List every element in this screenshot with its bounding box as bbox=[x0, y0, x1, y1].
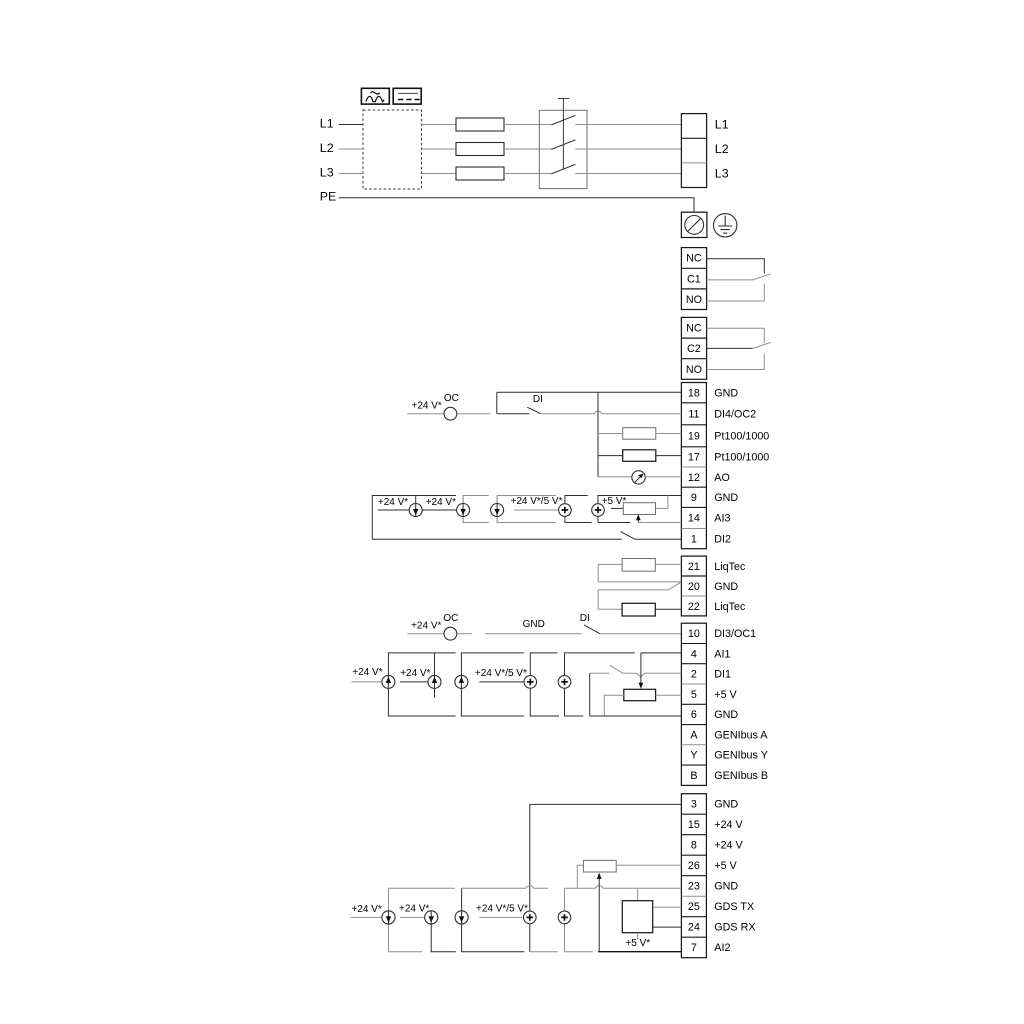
svg-text:Y: Y bbox=[690, 750, 697, 762]
svg-text:C1: C1 bbox=[687, 273, 701, 285]
svg-text:PE: PE bbox=[320, 190, 337, 204]
svg-text:+24 V*: +24 V* bbox=[411, 621, 441, 632]
svg-text:+24 V*/5 V*: +24 V*/5 V* bbox=[475, 668, 527, 679]
svg-text:LiqTec: LiqTec bbox=[714, 601, 746, 613]
svg-text:+5 V*: +5 V* bbox=[625, 938, 650, 949]
svg-text:+24 V: +24 V bbox=[714, 819, 743, 831]
svg-text:10: 10 bbox=[688, 628, 700, 640]
svg-text:26: 26 bbox=[688, 860, 700, 872]
svg-text:+24 V*: +24 V* bbox=[352, 904, 382, 915]
svg-text:L2: L2 bbox=[715, 142, 729, 156]
svg-text:L2: L2 bbox=[320, 141, 334, 155]
svg-text:GENIbus A: GENIbus A bbox=[714, 729, 768, 741]
svg-text:L1: L1 bbox=[320, 117, 334, 131]
svg-text:+24 V*: +24 V* bbox=[352, 667, 382, 678]
svg-text:14: 14 bbox=[688, 513, 700, 525]
svg-text:L1: L1 bbox=[715, 117, 729, 131]
svg-text:L3: L3 bbox=[320, 166, 334, 180]
svg-text:5: 5 bbox=[691, 689, 697, 701]
svg-text:GND: GND bbox=[714, 881, 738, 893]
svg-text:AI1: AI1 bbox=[714, 648, 730, 660]
svg-text:+24 V*: +24 V* bbox=[412, 400, 442, 411]
svg-text:+24 V*: +24 V* bbox=[400, 668, 430, 679]
svg-text:NO: NO bbox=[686, 364, 702, 376]
svg-text:17: 17 bbox=[688, 452, 700, 464]
svg-text:GND: GND bbox=[714, 709, 738, 721]
svg-text:+24 V*/5 V*: +24 V*/5 V* bbox=[511, 496, 563, 507]
svg-text:+5 V: +5 V bbox=[714, 860, 737, 872]
svg-text:Pt100/1000: Pt100/1000 bbox=[714, 431, 769, 443]
svg-text:+5 V: +5 V bbox=[714, 689, 737, 701]
svg-text:C2: C2 bbox=[687, 343, 701, 355]
svg-text:AI2: AI2 bbox=[714, 942, 730, 954]
svg-text:GND: GND bbox=[714, 387, 738, 399]
svg-text:DI3/OC1: DI3/OC1 bbox=[714, 628, 756, 640]
svg-text:21: 21 bbox=[688, 561, 700, 573]
svg-text:8: 8 bbox=[691, 840, 697, 852]
svg-text:+24 V: +24 V bbox=[714, 840, 743, 852]
svg-text:GND: GND bbox=[714, 581, 738, 593]
svg-text:DI2: DI2 bbox=[714, 533, 731, 545]
svg-text:23: 23 bbox=[688, 881, 700, 893]
svg-text:DI1: DI1 bbox=[714, 669, 731, 681]
svg-text:GND: GND bbox=[714, 492, 738, 504]
svg-text:LiqTec: LiqTec bbox=[714, 561, 746, 573]
svg-text:+24 V*: +24 V* bbox=[426, 497, 456, 508]
svg-text:Pt100/1000: Pt100/1000 bbox=[714, 452, 769, 464]
svg-text:+24 V*/5 V*: +24 V*/5 V* bbox=[476, 904, 528, 915]
svg-text:NO: NO bbox=[686, 294, 702, 306]
svg-text:L3: L3 bbox=[715, 167, 729, 181]
svg-text:24: 24 bbox=[688, 922, 700, 934]
svg-text:2: 2 bbox=[691, 669, 697, 681]
svg-text:4: 4 bbox=[691, 648, 697, 660]
svg-text:3: 3 bbox=[691, 799, 697, 811]
svg-text:22: 22 bbox=[688, 601, 700, 613]
svg-text:GDS TX: GDS TX bbox=[714, 901, 754, 913]
svg-text:18: 18 bbox=[688, 387, 700, 399]
svg-text:OC: OC bbox=[444, 393, 459, 404]
svg-text:OC: OC bbox=[443, 613, 458, 624]
svg-text:7: 7 bbox=[691, 942, 697, 954]
svg-text:AO: AO bbox=[714, 472, 730, 484]
svg-text:1: 1 bbox=[691, 533, 697, 545]
svg-text:+24 V*: +24 V* bbox=[378, 497, 408, 508]
svg-text:A: A bbox=[690, 729, 698, 741]
svg-text:AI3: AI3 bbox=[714, 513, 730, 525]
svg-text:GENIbus B: GENIbus B bbox=[714, 770, 768, 782]
svg-text:GND: GND bbox=[714, 799, 738, 811]
svg-text:DI: DI bbox=[533, 394, 543, 405]
svg-text:DI: DI bbox=[580, 613, 590, 624]
svg-text:20: 20 bbox=[688, 581, 700, 593]
svg-text:GENIbus Y: GENIbus Y bbox=[714, 750, 768, 762]
svg-text:9: 9 bbox=[691, 492, 697, 504]
svg-text:12: 12 bbox=[688, 472, 700, 484]
svg-text:+24 V*: +24 V* bbox=[399, 904, 429, 915]
svg-text:DI4/OC2: DI4/OC2 bbox=[714, 409, 756, 421]
svg-text:25: 25 bbox=[688, 901, 700, 913]
svg-text:6: 6 bbox=[691, 709, 697, 721]
svg-text:GND: GND bbox=[523, 619, 545, 630]
svg-text:NC: NC bbox=[686, 323, 702, 335]
svg-text:NC: NC bbox=[686, 253, 702, 265]
svg-text:B: B bbox=[690, 770, 697, 782]
svg-text:11: 11 bbox=[688, 409, 699, 421]
svg-text:GDS RX: GDS RX bbox=[714, 922, 755, 934]
svg-text:15: 15 bbox=[688, 819, 700, 831]
svg-text:19: 19 bbox=[688, 431, 700, 443]
